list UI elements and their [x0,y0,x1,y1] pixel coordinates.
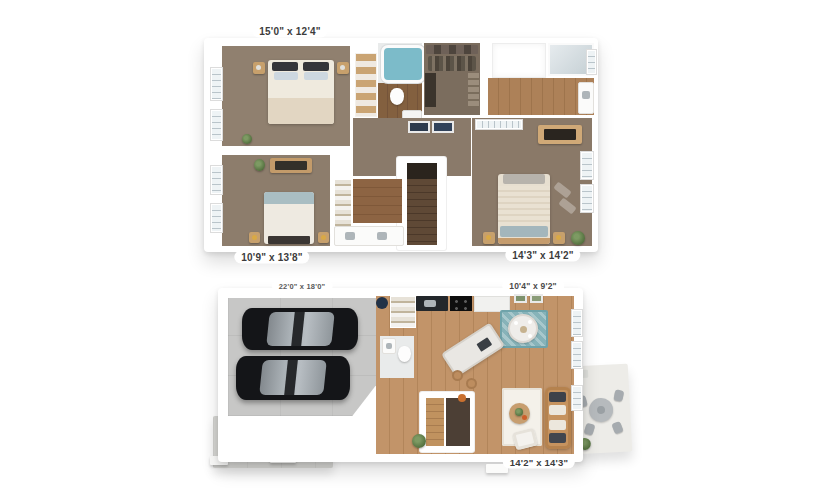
wall-art-icon [514,294,527,303]
plant-icon [254,159,265,171]
patio-table-icon [588,397,613,422]
hanging-clothes-icon [428,56,476,71]
bedroom2-console-icon [270,158,312,173]
nightstand-icon [253,62,265,74]
stairs-icon [407,179,437,245]
halfbath-sink-icon [382,338,396,354]
plant-icon [242,134,252,144]
patio-chair-icon [584,423,596,436]
kitchen-counter-icon [416,296,448,311]
pantry-icon [390,296,416,328]
hallbath-vanity-icon [334,226,404,246]
patio-door-icon [572,386,582,410]
wall-art-icon [432,121,454,133]
bedroom1-window-icon [211,68,222,100]
stairs-icon [426,398,444,446]
patio-chair-icon [611,421,623,434]
toilet-icon [398,346,411,362]
wall-art-icon [530,294,543,303]
toilet-icon [390,88,404,105]
bedroom1-window-icon [211,110,222,140]
stool-icon [466,378,477,389]
dimension-label-garage: 22'0" x 18'0" [272,281,333,292]
dining-table-icon [508,314,538,343]
hallbath-closet-icon [334,179,352,227]
bathtub-icon [381,45,425,83]
master-dresser-icon [538,125,582,144]
bedroom2-window-icon [211,204,222,232]
car-icon [236,356,350,400]
bathroom2-window-icon [587,50,596,74]
bedroom2-window-icon [211,166,222,194]
sofa-icon [545,387,571,449]
dimension-label-bedroom1: 15'0" x 12'4" [252,25,327,38]
nightstand-icon [553,232,565,244]
car-icon [242,308,358,350]
dimension-label-kitchen: 10'4" x 9'2" [502,280,564,292]
stove-icon [450,296,472,311]
lower-stairwell [420,392,474,452]
closet-dresser-icon [425,73,436,107]
linen-closet-icon [355,53,377,117]
nightstand-icon [337,62,349,74]
lower-floor-plan [210,283,640,483]
plant-icon [412,434,426,448]
stool-icon [452,370,463,381]
bedroom1-bed-icon [268,60,334,124]
dimension-label-living: 14'2" x 14'3" [503,456,575,469]
floorplan-canvas: 15'0" x 12'4" 10'9" x 13'8" 14'3" x 14'2… [0,0,825,500]
wall-art-icon [408,121,430,133]
hallbath-floor [353,179,402,223]
closet-shelf-boxes-icon [426,45,478,54]
stair-void-block [492,43,546,78]
nightstand-icon [318,232,329,243]
bathroom2-vanity-icon [578,82,594,114]
living-window-icon [572,342,582,368]
dimension-label-master: 14'3" x 14'2" [505,249,580,262]
coffee-table-icon [509,403,530,424]
water-heater-icon [376,297,388,309]
upper-floor-plan [204,38,598,252]
upper-stairwell [397,157,446,250]
living-window-icon [572,310,582,336]
dimension-label-bedroom2: 10'9" x 13'8" [234,251,309,264]
nightstand-icon [249,232,260,243]
basket-icon [458,394,466,402]
nightstand-icon [483,232,495,244]
master-bed-icon [498,174,550,244]
plant-icon [571,231,585,245]
lower-floor-building [218,288,583,462]
master-window-icon [581,185,593,212]
bedroom2-bed-icon [264,192,314,244]
master-transom-window-icon [476,120,522,129]
patio-chair-icon [613,389,624,402]
master-window-icon [581,152,593,179]
shoe-shelf-icon [468,73,479,107]
